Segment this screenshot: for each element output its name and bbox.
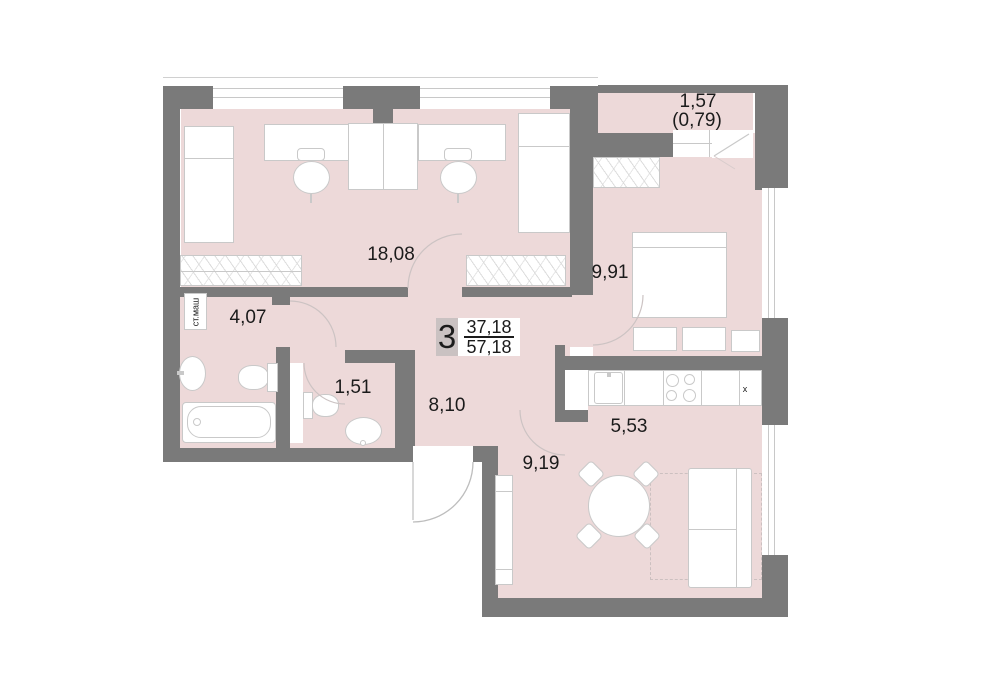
wall xyxy=(163,86,180,462)
label-bedroom: 9,91 xyxy=(592,262,629,284)
apartment-number: 3 xyxy=(436,318,458,356)
wall xyxy=(180,287,408,297)
wall xyxy=(593,133,673,157)
stove-burner-icon xyxy=(666,374,679,387)
stove-burner-icon xyxy=(666,390,677,401)
label-children-room: 18,08 xyxy=(367,244,415,266)
wall xyxy=(755,93,788,190)
balcony-door[interactable] xyxy=(712,130,753,158)
apartment-areas: 37,18 57,18 xyxy=(458,318,520,356)
total-area: 57,18 xyxy=(466,338,511,356)
shelf-unit-icon xyxy=(348,123,418,190)
label-balcony-coeff: (0,79) xyxy=(672,110,722,132)
wall xyxy=(570,109,593,295)
wall xyxy=(163,86,213,109)
wall xyxy=(555,356,762,370)
balcony-window xyxy=(673,130,712,157)
chair-stem xyxy=(457,194,459,203)
nightstand-icon xyxy=(633,327,677,351)
wall xyxy=(276,347,290,448)
entrance-door-opening[interactable] xyxy=(413,446,473,462)
toilet-icon xyxy=(238,365,269,390)
side-table-icon xyxy=(731,330,760,352)
toilet-tank xyxy=(267,363,278,392)
washing-machine-label: ст.маш xyxy=(191,297,201,326)
label-dining: 9,19 xyxy=(523,453,560,475)
floor-plan: x ст.маш 18,08 1,57 (0,79) 9,91 4,07 xyxy=(0,0,990,700)
stove-burner-icon xyxy=(683,389,696,402)
sink-tap xyxy=(360,440,366,446)
washing-machine-icon: ст.маш xyxy=(184,293,207,330)
wall xyxy=(473,446,498,462)
wall xyxy=(762,318,788,425)
wardrobe-icon xyxy=(593,157,660,188)
office-chair-icon xyxy=(293,161,330,194)
chair-back-icon xyxy=(444,148,472,161)
single-bed-icon xyxy=(184,126,234,243)
chair-stem xyxy=(310,194,312,203)
window xyxy=(420,78,550,109)
wall xyxy=(163,448,413,462)
label-wc: 1,51 xyxy=(335,377,372,399)
vent-mark: x xyxy=(743,384,748,394)
wall xyxy=(272,290,290,305)
stove-burner-icon xyxy=(684,374,695,385)
chair-back-icon xyxy=(297,148,325,161)
sofa-icon xyxy=(688,468,752,588)
kitchen-door-opening[interactable] xyxy=(565,370,588,410)
label-hallway: 8,10 xyxy=(429,395,466,417)
wall xyxy=(482,598,788,617)
floor-bedroom-doorway xyxy=(568,295,593,347)
label-bathroom: 4,07 xyxy=(230,307,267,329)
sink-tap xyxy=(177,371,184,375)
window-bedroom xyxy=(762,188,788,318)
kitchen-sink-icon xyxy=(594,372,623,404)
office-chair-icon xyxy=(440,161,477,194)
label-kitchen: 5,53 xyxy=(611,416,648,438)
wc-door-nook xyxy=(290,363,303,443)
double-bed-icon xyxy=(632,232,727,318)
dining-table-icon xyxy=(588,475,650,537)
cabinet-icon xyxy=(495,475,513,585)
bathtub-drain xyxy=(193,418,201,426)
door-arc-entrance xyxy=(413,462,473,522)
single-bed-icon xyxy=(518,113,570,233)
wardrobe-icon xyxy=(180,255,302,286)
nightstand-icon xyxy=(682,327,726,351)
wall xyxy=(555,410,588,422)
wardrobe-icon xyxy=(466,255,566,286)
apartment-info-badge: 3 37,18 57,18 xyxy=(436,318,520,356)
wall xyxy=(343,86,420,109)
living-area: 37,18 xyxy=(464,318,513,338)
window-dining xyxy=(762,425,788,555)
wall xyxy=(462,287,572,297)
wall xyxy=(395,350,415,448)
window xyxy=(213,78,343,109)
